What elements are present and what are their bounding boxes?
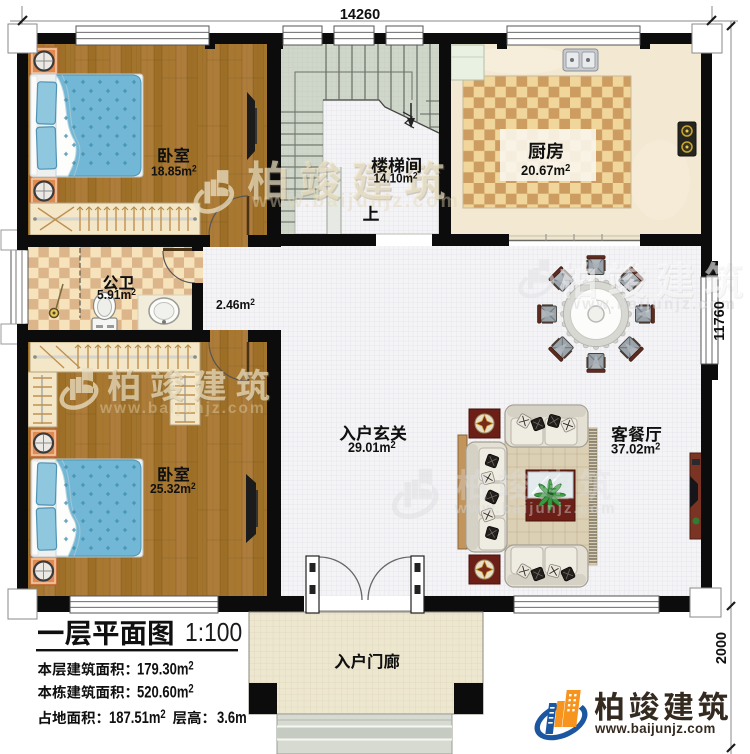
svg-text:1:100: 1:100 xyxy=(185,619,242,648)
svg-text:3.6m: 3.6m xyxy=(217,710,247,728)
svg-text:www.baijunjz.com: www.baijunjz.com xyxy=(454,500,616,517)
svg-text:www.baijunjz.com: www.baijunjz.com xyxy=(99,400,266,417)
svg-text:37.02m2: 37.02m2 xyxy=(611,441,660,457)
svg-text:520.60m2: 520.60m2 xyxy=(137,683,194,702)
svg-text:www.baijunjz.com: www.baijunjz.com xyxy=(594,721,716,736)
svg-text:187.51m2: 187.51m2 xyxy=(109,708,166,727)
svg-text:18.85m2: 18.85m2 xyxy=(151,163,197,178)
svg-text:179.30m2: 179.30m2 xyxy=(137,660,194,679)
svg-text:25.32m2: 25.32m2 xyxy=(150,481,196,496)
svg-text:5.91m2: 5.91m2 xyxy=(97,287,136,302)
svg-text:11760: 11760 xyxy=(712,301,728,341)
svg-text:2000: 2000 xyxy=(714,632,730,664)
svg-text:29.01m2: 29.01m2 xyxy=(348,440,396,456)
svg-text:14.10m2: 14.10m2 xyxy=(374,170,418,185)
svg-text:2.46m2: 2.46m2 xyxy=(216,297,255,312)
svg-text:14260: 14260 xyxy=(340,7,380,23)
svg-text:20.67m2: 20.67m2 xyxy=(521,163,570,179)
svg-text:www.baijunjz.com: www.baijunjz.com xyxy=(251,190,460,212)
